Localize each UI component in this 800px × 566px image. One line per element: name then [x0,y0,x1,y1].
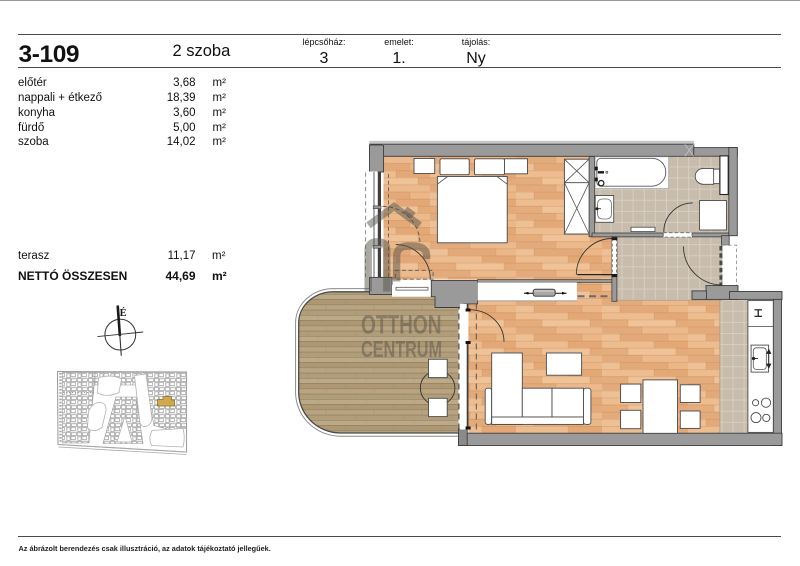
svg-text:É: É [120,307,127,319]
svg-text:CENTRUM: CENTRUM [361,336,442,362]
svg-text:OTTHON: OTTHON [361,309,442,339]
